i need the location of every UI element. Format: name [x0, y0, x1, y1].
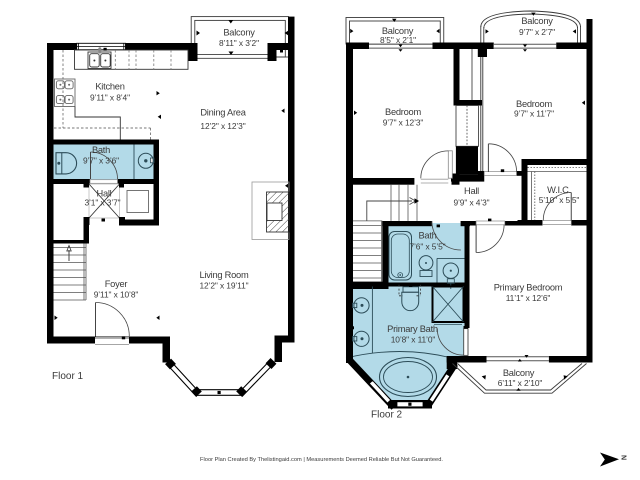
svg-text:Balcony: Balcony — [223, 28, 255, 38]
svg-text:7’6" x 5’5": 7’6" x 5’5" — [409, 242, 445, 252]
svg-text:W.I.C.: W.I.C. — [547, 185, 571, 195]
svg-text:9’7" x 2’7": 9’7" x 2’7" — [519, 27, 555, 37]
svg-text:6’11" x 2’10": 6’11" x 2’10" — [498, 378, 543, 388]
svg-text:Dining Area: Dining Area — [200, 108, 246, 118]
svg-text:9’9" x 4’3": 9’9" x 4’3" — [453, 198, 489, 208]
svg-text:Primary Bath: Primary Bath — [387, 324, 438, 334]
svg-text:Primary Bedroom: Primary Bedroom — [494, 283, 563, 293]
svg-text:N: N — [620, 455, 627, 460]
svg-text:5’10" x 5’5": 5’10" x 5’5" — [539, 195, 580, 205]
svg-text:Bath: Bath — [418, 231, 436, 241]
svg-text:Bath: Bath — [92, 145, 110, 155]
svg-text:10’8" x 11’0": 10’8" x 11’0" — [391, 335, 436, 345]
svg-text:Bedroom: Bedroom — [516, 99, 552, 109]
svg-text:8’5" x 2’1": 8’5" x 2’1" — [380, 35, 416, 45]
svg-text:11’1" x 12’6": 11’1" x 12’6" — [506, 293, 551, 303]
svg-text:8’11" x 3’2": 8’11" x 3’2" — [219, 38, 259, 48]
svg-text:Living Room: Living Room — [200, 270, 249, 280]
svg-text:Foyer: Foyer — [105, 279, 128, 289]
svg-text:9’7" x 11’7": 9’7" x 11’7" — [514, 109, 554, 119]
svg-text:9’11" x 8’4": 9’11" x 8’4" — [90, 93, 130, 103]
svg-text:12’2" x 19’11": 12’2" x 19’11" — [199, 281, 248, 291]
svg-text:Balcony: Balcony — [521, 16, 553, 26]
svg-text:3’1" x 3’7": 3’1" x 3’7" — [84, 198, 120, 208]
svg-text:Kitchen: Kitchen — [95, 82, 124, 92]
svg-text:Hall: Hall — [464, 186, 479, 196]
svg-text:Balcony: Balcony — [503, 368, 535, 378]
svg-text:Floor 1: Floor 1 — [52, 371, 84, 382]
svg-text:Floor Plan Created By Thelisti: Floor Plan Created By Thelistingaid.com … — [200, 457, 443, 463]
svg-text:12’2" x 12’3": 12’2" x 12’3" — [200, 121, 245, 131]
svg-text:9’11" x 10’8": 9’11" x 10’8" — [94, 290, 139, 300]
svg-text:Floor 2: Floor 2 — [371, 409, 403, 420]
svg-text:Bedroom: Bedroom — [385, 107, 421, 117]
svg-text:9’7" x 3’6": 9’7" x 3’6" — [83, 155, 119, 165]
svg-text:9’7" x 12’3": 9’7" x 12’3" — [383, 118, 424, 128]
